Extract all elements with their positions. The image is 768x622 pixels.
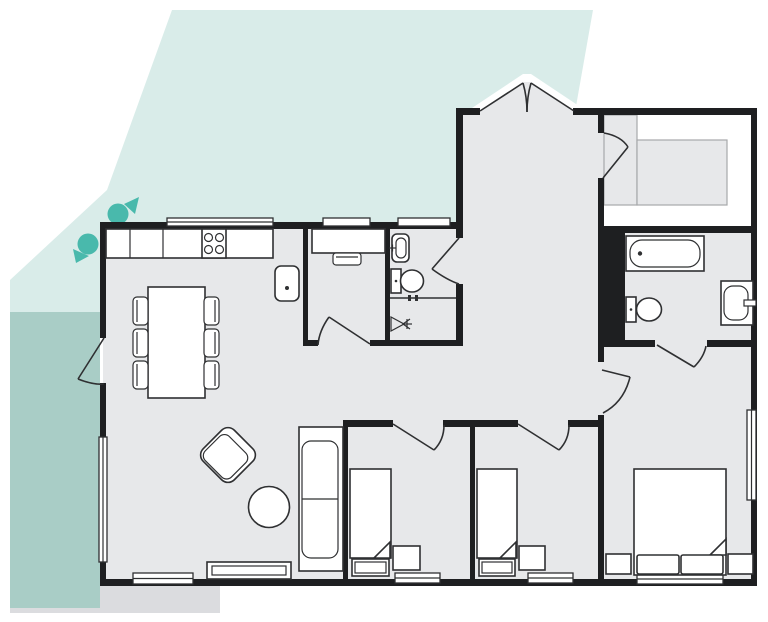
pillow-inner — [355, 562, 386, 573]
closet-floor — [637, 140, 727, 205]
wall-study-south-b — [370, 340, 463, 346]
wall-bed2-master — [598, 420, 604, 583]
sliding-door-tick — [408, 295, 411, 301]
service-shaft — [598, 233, 625, 345]
sliding-door-tick — [415, 295, 418, 301]
nightstand — [728, 554, 753, 574]
pillow-inner — [482, 562, 512, 573]
deck-area — [10, 312, 100, 608]
toilet-bowl — [637, 298, 662, 321]
floor-plan-canvas — [0, 0, 768, 622]
wall-entry-left-stub — [456, 108, 480, 115]
dining-chair — [204, 297, 219, 325]
wall-bedrooms-north-b — [443, 420, 518, 427]
wall-left-upper — [100, 222, 106, 338]
dining-chair — [133, 329, 148, 357]
wall-right — [751, 108, 757, 586]
wall-bath-south-a — [598, 340, 655, 347]
burner-icon — [216, 246, 224, 254]
dining-chair — [133, 361, 148, 389]
toilet — [391, 269, 424, 293]
pillow — [681, 555, 723, 574]
sink-tap-icon — [744, 300, 756, 306]
stove — [202, 229, 226, 258]
wash-basin-bowl — [396, 238, 406, 258]
tv-stand-inner — [212, 566, 286, 575]
sink-drain-icon — [285, 286, 289, 290]
single-bed — [477, 469, 517, 558]
window-wc — [398, 218, 450, 226]
floor-plan-svg — [0, 0, 768, 622]
nightstand — [606, 554, 631, 574]
tree-crown-icon — [108, 204, 129, 225]
dining-chair — [204, 361, 219, 389]
single-bed — [350, 469, 391, 558]
wall-closet-stub-bottom — [598, 178, 604, 226]
wall-study-south-a — [303, 340, 318, 346]
round-side-table — [249, 487, 290, 528]
kitchen-counter — [106, 229, 273, 258]
toilet-bowl — [401, 270, 424, 292]
wall-hall-west-lower — [456, 284, 463, 346]
bathtub-drain-icon — [638, 251, 642, 255]
desk-chair — [333, 253, 361, 265]
wall-bedrooms-north-a — [345, 420, 393, 427]
nightstand — [393, 546, 420, 570]
wall-bed1-bed2 — [470, 420, 475, 583]
wall-hall-west-upper — [456, 112, 463, 238]
toilet-2 — [626, 297, 662, 322]
burner-icon — [216, 234, 224, 242]
sofa — [299, 427, 343, 571]
toilet-button-icon — [395, 280, 398, 283]
dining-chair — [204, 329, 219, 357]
wall-bedrooms-north-c — [568, 420, 598, 427]
pillow — [637, 555, 679, 574]
nightstand — [519, 546, 545, 570]
bathtub — [626, 236, 704, 271]
burner-icon — [205, 246, 213, 254]
kitchen-sink — [275, 266, 299, 301]
wall-master-stub-top — [598, 340, 604, 362]
dining-chair — [133, 297, 148, 325]
burner-icon — [205, 234, 213, 242]
wall-bath-south-b — [707, 340, 751, 347]
tree-crown-icon — [78, 234, 99, 255]
toilet-button-icon — [630, 308, 633, 311]
closet-floor-strip — [604, 115, 637, 205]
tv-stand — [207, 562, 291, 579]
desk — [312, 229, 385, 253]
dining-table — [148, 287, 205, 398]
walk-in-closet — [604, 115, 751, 226]
wall-closet-bath — [598, 226, 751, 233]
window-study — [323, 218, 370, 226]
dining-area — [133, 287, 219, 398]
wall-kitchen-study — [303, 229, 308, 345]
wall-closet-stub-top — [598, 112, 604, 133]
bathroom-sink — [721, 281, 756, 325]
